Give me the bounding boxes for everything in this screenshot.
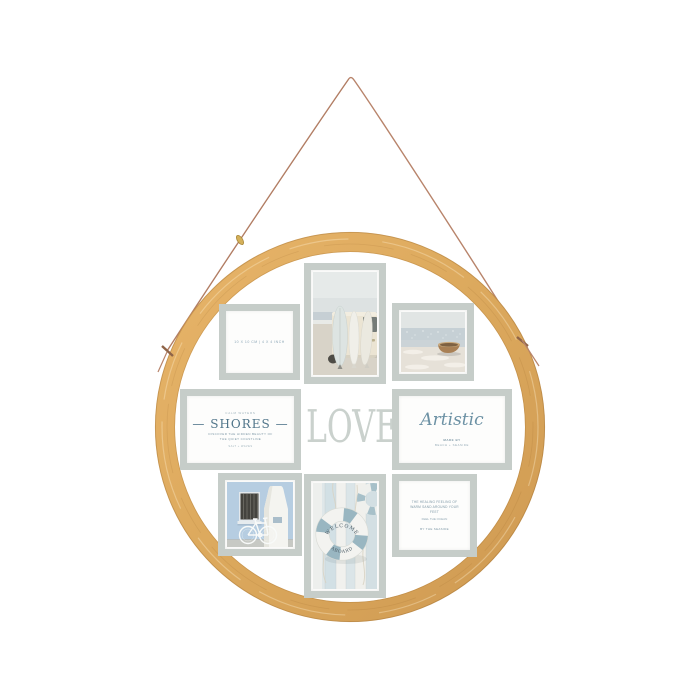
boat-photo [401,312,465,372]
collage-slot-bottom-right: THE HEALING FEELING OF WARM SAND AROUND … [392,474,477,557]
artistic-line1: MADE BY [443,438,460,442]
bicycle-photo [227,482,293,547]
collage-slot-middle-left: CALM WATERS — SHORES — DISCOVER THE HIDD… [180,389,301,470]
collage-slot-top-right [392,303,474,381]
collage-slot-top-left: 10 X 10 CM | 4 X 4 INCH [219,304,300,380]
love-center-text: LOVE [306,405,390,449]
quote-line2: FEEL THE OCEAN [422,517,448,521]
quote-insert: THE HEALING FEELING OF WARM SAND AROUND … [399,481,470,550]
shores-kicker: CALM WATERS [225,411,255,415]
shores-line1: DISCOVER THE HIDDEN BEAUTY OF [208,432,272,437]
product-photo-round-collage-frame: LOVE 10 X 10 CM | 4 X 4 INCH [0,0,700,700]
lifebuoy-photo: WELCOME ABOARD [313,483,377,589]
collage-slot-middle-right: Artistic MADE BY BEACH + SEASIDE [392,389,512,470]
quote-line1: THE HEALING FEELING OF WARM SAND AROUND … [407,500,463,515]
shores-insert: CALM WATERS — SHORES — DISCOVER THE HIDD… [187,396,294,463]
shuttered-window [238,492,262,526]
size-label-text: 10 X 10 CM | 4 X 4 INCH [234,340,285,344]
shores-title: — SHORES — [192,418,288,430]
shores-footer: SALT + WAVES [228,445,252,448]
size-label-insert: 10 X 10 CM | 4 X 4 INCH [226,311,293,373]
artistic-title: Artistic [420,412,483,429]
collage-slot-top-center [304,263,386,384]
collage-slot-bottom-center: WELCOME ABOARD [304,474,386,598]
collage-slot-bottom-left [218,473,302,556]
surfboards [333,306,374,370]
surfboards-photo [313,272,377,375]
artistic-insert: Artistic MADE BY BEACH + SEASIDE [399,396,505,463]
rowing-boat [437,342,461,356]
shores-line2: THE QUIET COASTLINE [220,437,261,442]
artistic-line2: BEACH + SEASIDE [435,443,469,447]
quote-line3: BY THE SEASIDE [420,527,449,531]
